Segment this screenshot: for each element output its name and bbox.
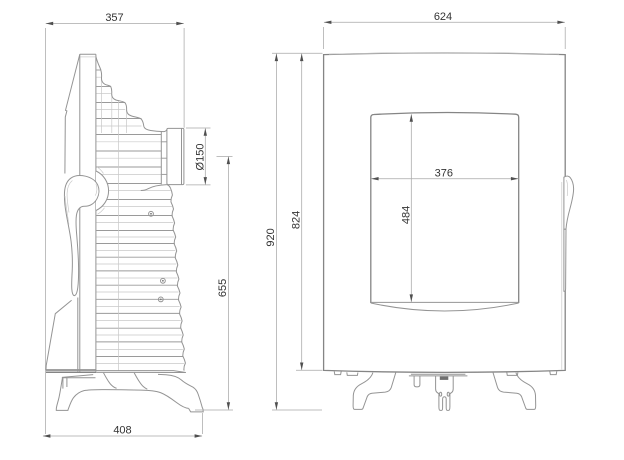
svg-text:Ø150: Ø150 — [195, 144, 207, 171]
svg-text:484: 484 — [401, 206, 413, 224]
svg-text:920: 920 — [265, 228, 277, 246]
svg-text:655: 655 — [217, 279, 229, 297]
svg-text:376: 376 — [435, 167, 453, 179]
svg-text:357: 357 — [105, 12, 123, 24]
svg-text:624: 624 — [434, 11, 452, 23]
svg-text:824: 824 — [291, 211, 303, 229]
svg-text:408: 408 — [113, 425, 131, 437]
